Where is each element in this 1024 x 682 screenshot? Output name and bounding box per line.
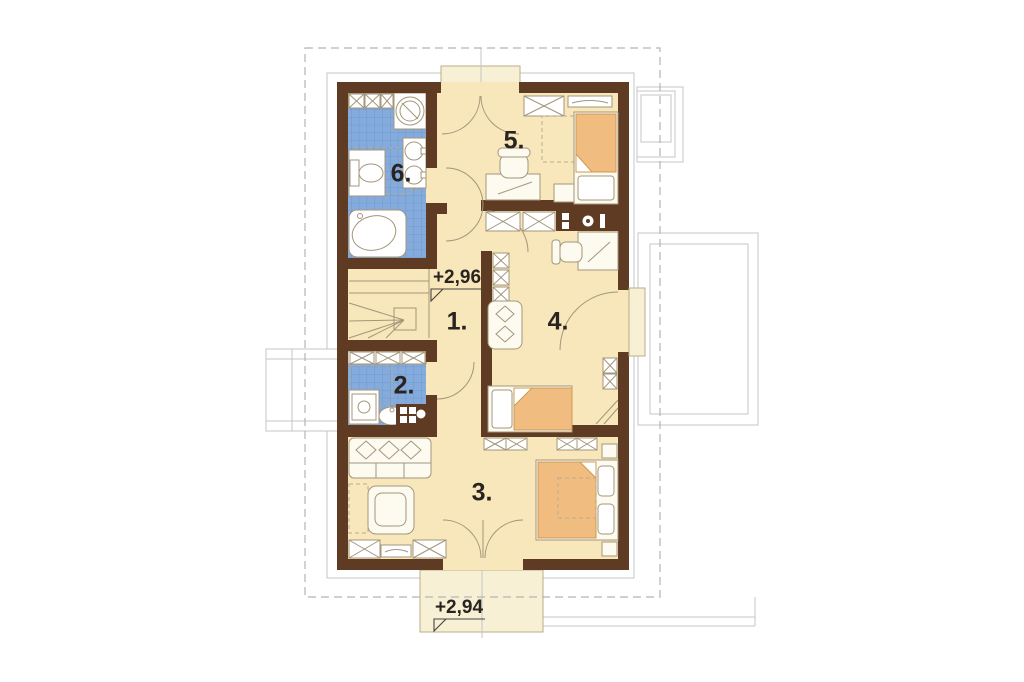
bed-icon [574,112,618,204]
room-label-1: 1. [447,308,468,337]
shelf-icon [381,545,411,557]
terrace-left [266,349,338,431]
level-label-upper: +2,96 [433,267,481,289]
stove-counter-icon [396,404,426,425]
bathtub-icon [349,210,406,257]
double-bed-icon [536,460,618,540]
wardrobe-icon [523,212,555,231]
wardrobe-icon [577,438,597,450]
armchair-icon [368,486,414,534]
single-bed-icon [488,386,572,432]
wardrobe-icon [506,438,527,450]
wardrobe-icon [524,96,564,116]
kitchenette-icon [556,211,618,231]
nightstand-icon [602,542,617,556]
shelf-xbox-row [350,352,425,364]
desk-icon [578,232,618,270]
shelf-icon [568,96,612,107]
balcony-threshold [629,288,645,356]
wardrobe-icon [484,438,506,450]
terrace-right [638,233,758,425]
room-label-4: 4. [548,308,569,337]
nightstand-icon [602,444,617,458]
shelf-icon [603,358,617,389]
bathroom-6 [348,93,426,258]
wardrobe-icon [413,540,446,558]
washing-machine-icon [349,390,379,424]
room-label-3: 3. [472,479,493,508]
room-label-5: 5. [504,127,525,156]
terrace-lines-bottom-right [543,597,755,626]
toilet-icon [349,150,385,196]
closet-icon [493,253,509,302]
chair-icon [552,240,582,264]
room-label-6: 6. [391,160,412,189]
wardrobe-icon [349,540,380,558]
level-label-lower: +2,94 [435,597,483,619]
entry-porch-top [441,48,520,84]
shelf-xbox-row [349,94,393,108]
wardrobe-icon [486,212,520,231]
sofa-icon [349,438,431,478]
wardrobe-icon [557,438,577,450]
room-label-2: 2. [394,372,415,401]
armchair-icon [488,301,522,349]
floor-plan: 1. 2. 3. 4. 5. 6. +2,96 +2,94 [0,0,1024,682]
nightstand-icon [554,184,574,202]
floor-plan-drawing [0,0,1024,682]
washing-machine-icon [394,93,426,129]
